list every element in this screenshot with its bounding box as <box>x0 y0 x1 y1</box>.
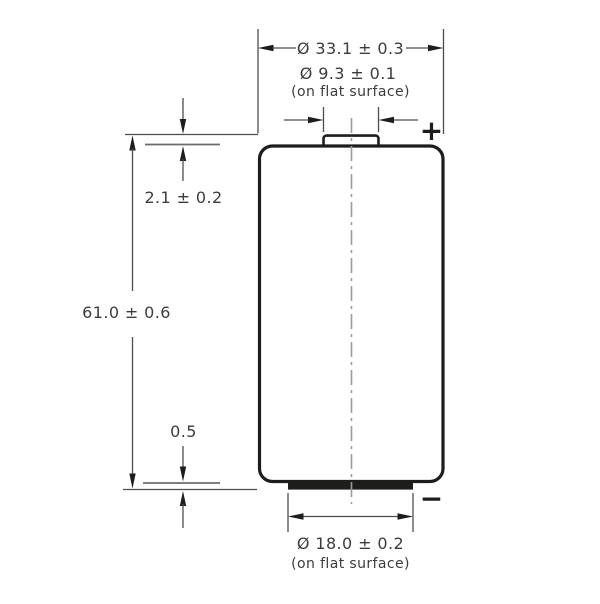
arrowhead-left-icon <box>258 45 274 52</box>
arrowhead-right-icon <box>398 513 414 520</box>
pos-terminal-diameter-label: Ø 9.3 ± 0.1 <box>300 64 397 83</box>
battery-dimension-drawing: Ø 33.1 ± 0.3 Ø 9.3 ± 0.1 (on flat surfac… <box>0 0 600 600</box>
arrowhead-right-icon <box>308 117 324 124</box>
arrowhead-up-icon <box>180 491 186 506</box>
neg-terminal-diameter-label: Ø 18.0 ± 0.2 <box>297 534 404 553</box>
overall-diameter-label: Ø 33.1 ± 0.3 <box>297 39 404 58</box>
pos-terminal-height-label: 2.1 ± 0.2 <box>144 188 222 207</box>
arrowhead-left-icon <box>379 117 395 124</box>
arrowhead-down-icon <box>180 119 186 134</box>
battery-outline <box>260 118 444 504</box>
negative-polarity-symbol: − <box>420 482 443 515</box>
positive-polarity-symbol: + <box>420 114 443 147</box>
arrowhead-right-icon <box>428 45 444 52</box>
arrowhead-left-icon <box>288 513 304 520</box>
drawing-svg: Ø 33.1 ± 0.3 Ø 9.3 ± 0.1 (on flat surfac… <box>0 0 600 600</box>
arrowhead-down-icon <box>129 474 135 489</box>
dim-negative-terminal-diameter: Ø 18.0 ± 0.2 (on flat surface) <box>288 493 413 572</box>
overall-height-label: 61.0 ± 0.6 <box>82 303 171 322</box>
arrowhead-up-icon <box>180 146 186 161</box>
arrowhead-down-icon <box>180 467 186 482</box>
neg-terminal-note-label: (on flat surface) <box>291 556 410 572</box>
dim-negative-terminal-protrusion: 0.5 <box>123 422 257 528</box>
negative-terminal-flat <box>288 483 413 490</box>
pos-terminal-note-label: (on flat surface) <box>291 84 410 100</box>
dim-positive-terminal-height: 2.1 ± 0.2 <box>125 98 258 207</box>
neg-protrusion-label: 0.5 <box>170 422 197 441</box>
